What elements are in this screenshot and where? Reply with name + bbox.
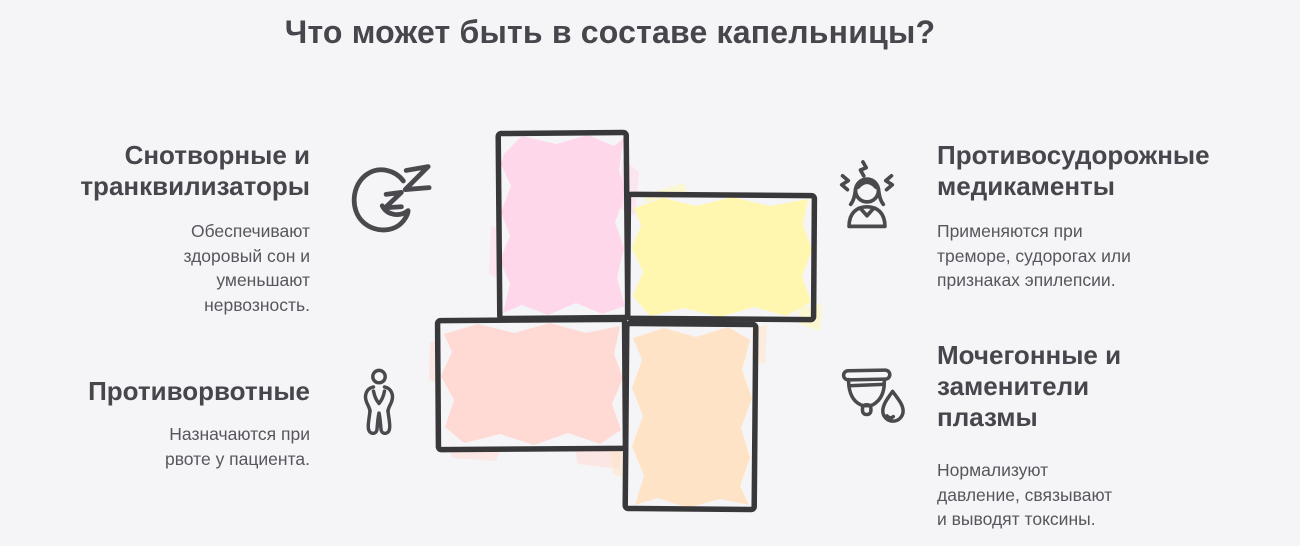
iv-cross-diagram bbox=[436, 128, 816, 514]
cross-cell-orange bbox=[632, 327, 752, 508]
sleep-moon-icon bbox=[340, 158, 436, 246]
section-heading-sedatives: Снотворные и транквилизаторы bbox=[60, 140, 310, 202]
section-description-sedatives: Обеспечивают здоровый сон и уменьшают не… bbox=[135, 219, 310, 317]
section-heading-anticonvulsants: Противосудорожные медикаменты bbox=[937, 140, 1227, 202]
nausea-person-icon bbox=[358, 369, 400, 438]
cross-cell-pink bbox=[500, 135, 626, 315]
section-heading-antiemetics: Противорвотные bbox=[30, 376, 310, 407]
page-title: Что может быть в составе капельницы? bbox=[0, 14, 1220, 51]
tremor-person-icon bbox=[836, 156, 898, 238]
section-description-anticonvulsants: Применяются при треморе, судорогах или п… bbox=[937, 219, 1132, 293]
section-heading-diuretics: Мочегонные и заменители плазмы bbox=[937, 340, 1147, 433]
section-description-diuretics: Нормализуют давление, связывают и выводя… bbox=[937, 458, 1115, 532]
cross-cell-yellow bbox=[632, 197, 812, 317]
cup-droplet-icon bbox=[838, 362, 908, 432]
section-description-antiemetics: Назначаются при рвоте у пациента. bbox=[135, 422, 310, 471]
cross-cell-salmon bbox=[441, 323, 623, 445]
